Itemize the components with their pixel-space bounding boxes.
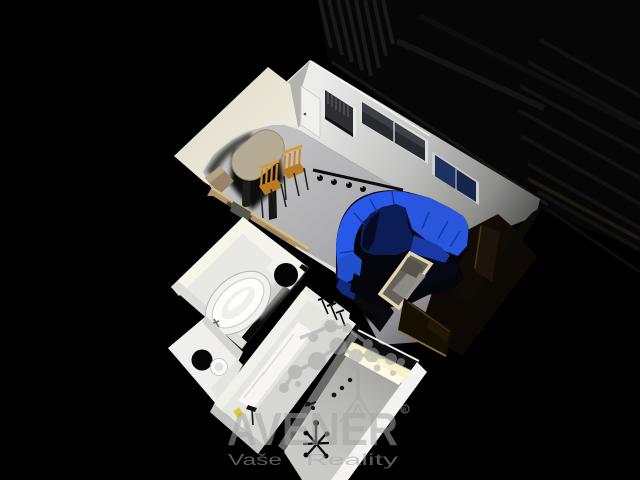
svg-text:Reality: Reality bbox=[306, 452, 398, 469]
svg-text:AVENER: AVENER bbox=[227, 403, 398, 455]
svg-text:Vaše: Vaše bbox=[228, 452, 282, 469]
svg-text:R: R bbox=[402, 407, 407, 414]
